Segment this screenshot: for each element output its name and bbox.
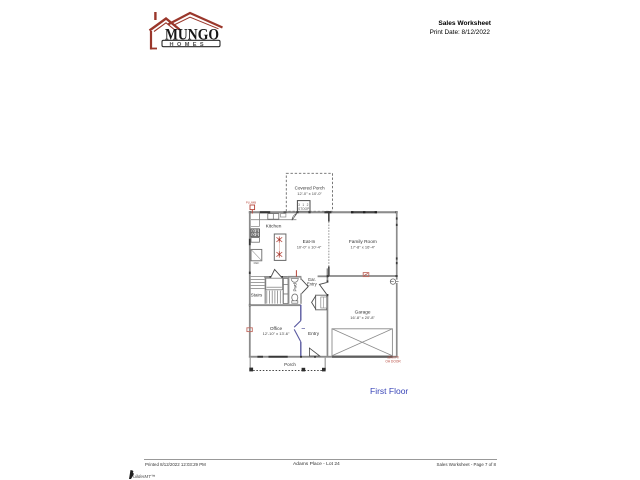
svg-text:Entry: Entry	[307, 282, 318, 287]
svg-text:Stairs: Stairs	[251, 293, 263, 298]
svg-text:PLUMB: PLUMB	[246, 201, 256, 205]
svg-text:17'-8" x 16'-4": 17'-8" x 16'-4"	[350, 245, 375, 250]
svg-text:16'0x7'0: 16'0x7'0	[387, 355, 399, 359]
svg-text:Pwd: Pwd	[292, 283, 297, 292]
svg-text:16'-8" x 20'-8": 16'-8" x 20'-8"	[350, 315, 375, 320]
svg-text:12'-10" x 13'-6": 12'-10" x 13'-6"	[263, 331, 290, 336]
svg-text:Covered Porch: Covered Porch	[295, 186, 326, 191]
svg-text:uilderMT™: uilderMT™	[133, 474, 155, 479]
svg-text:Kitchen: Kitchen	[266, 223, 282, 229]
svg-text:Entry: Entry	[308, 331, 320, 337]
svg-text:3 1 2: 3 1 2	[298, 203, 309, 207]
svg-text:10'-0" x 10'-4": 10'-0" x 10'-4"	[297, 245, 322, 250]
svg-text:Gar.: Gar.	[308, 277, 316, 282]
svg-text:OH DOOR: OH DOOR	[385, 359, 401, 363]
svg-text:REF: REF	[254, 261, 260, 265]
svg-text:STOOP: STOOP	[298, 207, 309, 211]
svg-text:Porch: Porch	[284, 362, 296, 367]
svg-text:12'-0" x 10'-0": 12'-0" x 10'-0"	[297, 191, 322, 196]
